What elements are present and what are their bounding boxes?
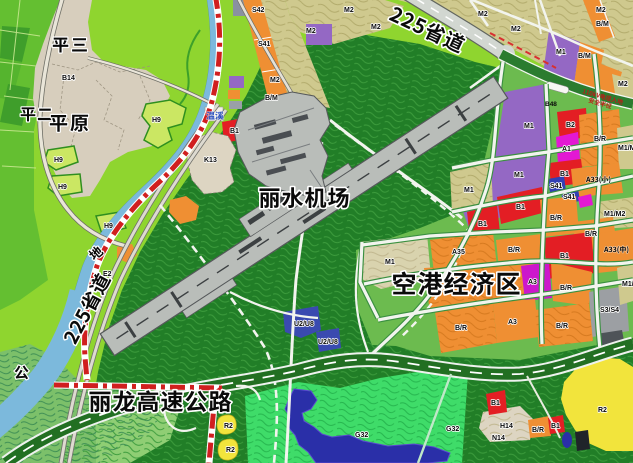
- svg-text:A35: A35: [452, 249, 465, 256]
- svg-text:A3: A3: [528, 279, 537, 286]
- svg-text:B/R: B/R: [550, 215, 562, 222]
- svg-text:M1: M1: [556, 49, 566, 56]
- svg-text:M1: M1: [464, 187, 474, 194]
- svg-text:B/R: B/R: [560, 285, 572, 292]
- svg-text:S42: S42: [252, 7, 265, 14]
- svg-text:M2: M2: [306, 28, 316, 35]
- svg-text:R2: R2: [226, 447, 235, 454]
- svg-text:S3/S4: S3/S4: [600, 307, 619, 314]
- svg-text:G32: G32: [446, 426, 459, 433]
- svg-text:M1/M2: M1/M2: [622, 281, 633, 288]
- svg-text:B/R: B/R: [532, 427, 544, 434]
- svg-text:M1: M1: [385, 259, 395, 266]
- svg-text:A1: A1: [562, 146, 571, 153]
- svg-text:H9: H9: [104, 223, 113, 230]
- svg-text:H9: H9: [152, 117, 161, 124]
- svg-text:B1: B1: [551, 423, 560, 430]
- svg-text:E2: E2: [103, 271, 112, 278]
- svg-text:B1: B1: [478, 221, 487, 228]
- svg-text:B/M: B/M: [265, 95, 278, 102]
- svg-text:B2: B2: [566, 122, 575, 129]
- svg-text:H14: H14: [500, 423, 513, 430]
- svg-text:M1: M1: [524, 123, 534, 130]
- svg-text:B1: B1: [560, 171, 569, 178]
- svg-text:B1: B1: [516, 204, 525, 211]
- svg-text:S41: S41: [258, 41, 271, 48]
- svg-text:S41: S41: [563, 194, 576, 201]
- svg-text:M2: M2: [618, 81, 628, 88]
- svg-text:R2: R2: [224, 423, 233, 430]
- svg-text:B/M: B/M: [578, 53, 591, 60]
- svg-text:K13: K13: [204, 157, 217, 164]
- svg-text:B14: B14: [62, 75, 75, 82]
- svg-text:B/M: B/M: [596, 21, 609, 28]
- svg-text:B/R: B/R: [594, 136, 606, 143]
- svg-text:M2: M2: [478, 11, 488, 18]
- svg-text:B/R: B/R: [556, 323, 568, 330]
- svg-text:M1/M2: M1/M2: [618, 145, 633, 152]
- svg-text:M2: M2: [270, 77, 280, 84]
- svg-text:B1: B1: [560, 253, 569, 260]
- svg-text:B1: B1: [491, 400, 500, 407]
- svg-text:H9: H9: [54, 157, 63, 164]
- svg-text:M1: M1: [514, 172, 524, 179]
- svg-text:B/R: B/R: [455, 325, 467, 332]
- svg-text:M1/M2: M1/M2: [604, 211, 626, 218]
- svg-text:R2: R2: [598, 407, 607, 414]
- svg-text:N14: N14: [492, 435, 505, 442]
- svg-text:M2: M2: [371, 24, 381, 31]
- svg-text:U2/U8: U2/U8: [318, 339, 338, 346]
- svg-text:S41: S41: [550, 183, 563, 190]
- svg-text:H9: H9: [58, 184, 67, 191]
- svg-text:G32: G32: [355, 432, 368, 439]
- svg-text:B48: B48: [545, 101, 557, 108]
- svg-text:M2: M2: [511, 26, 521, 33]
- svg-text:B/R: B/R: [585, 231, 597, 238]
- svg-text:M2: M2: [596, 7, 606, 14]
- svg-text:A3: A3: [508, 319, 517, 326]
- svg-text:B/R: B/R: [508, 247, 520, 254]
- svg-text:U2/U8: U2/U8: [294, 321, 314, 328]
- svg-text:M2: M2: [344, 7, 354, 14]
- svg-text:B1: B1: [230, 128, 239, 135]
